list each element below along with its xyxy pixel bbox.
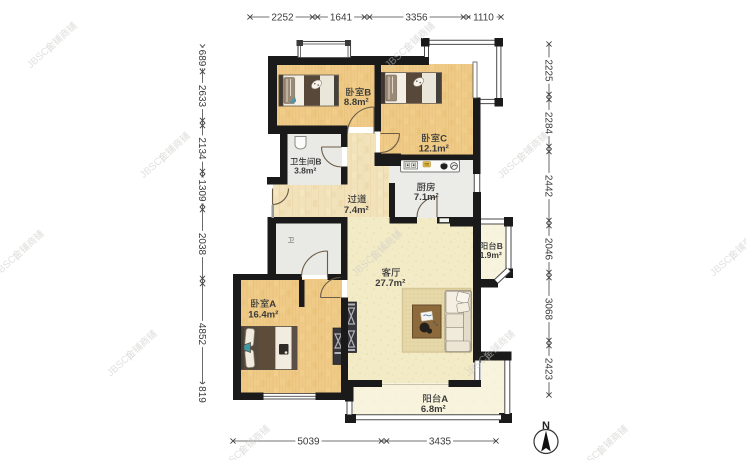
svg-text:3.8m²: 3.8m² [294,166,316,176]
svg-text:7.1m²: 7.1m² [414,192,439,203]
svg-text:3356: 3356 [405,13,428,24]
svg-text:2423: 2423 [542,358,553,381]
svg-text:819: 819 [196,386,207,403]
svg-text:2038: 2038 [196,233,207,256]
svg-text:2442: 2442 [542,175,553,198]
svg-text:1309: 1309 [196,179,207,202]
svg-text:3435: 3435 [429,437,452,448]
svg-text:12.1m²: 12.1m² [419,143,449,154]
svg-text:4852: 4852 [196,323,207,346]
svg-text:6.8m²: 6.8m² [421,404,446,415]
svg-text:3068: 3068 [542,298,553,321]
svg-text:2134: 2134 [196,137,207,160]
svg-text:A: A [269,299,276,310]
svg-text:8.8m²: 8.8m² [344,97,369,108]
svg-text:5039: 5039 [297,437,320,448]
svg-text:1110: 1110 [473,13,494,24]
svg-text:2225: 2225 [542,59,553,82]
svg-text:N: N [542,420,550,432]
svg-text:2252: 2252 [271,13,294,24]
svg-text:1.9m²: 1.9m² [480,250,502,260]
svg-text:2284: 2284 [542,112,553,135]
svg-text:2046: 2046 [542,238,553,261]
svg-text:689: 689 [196,50,207,67]
svg-text:1641: 1641 [330,13,353,24]
svg-text:16.4m²: 16.4m² [248,309,278,320]
svg-text:27.7m²: 27.7m² [375,278,405,289]
svg-text:2633: 2633 [196,85,207,108]
svg-text:7.4m²: 7.4m² [344,205,369,216]
